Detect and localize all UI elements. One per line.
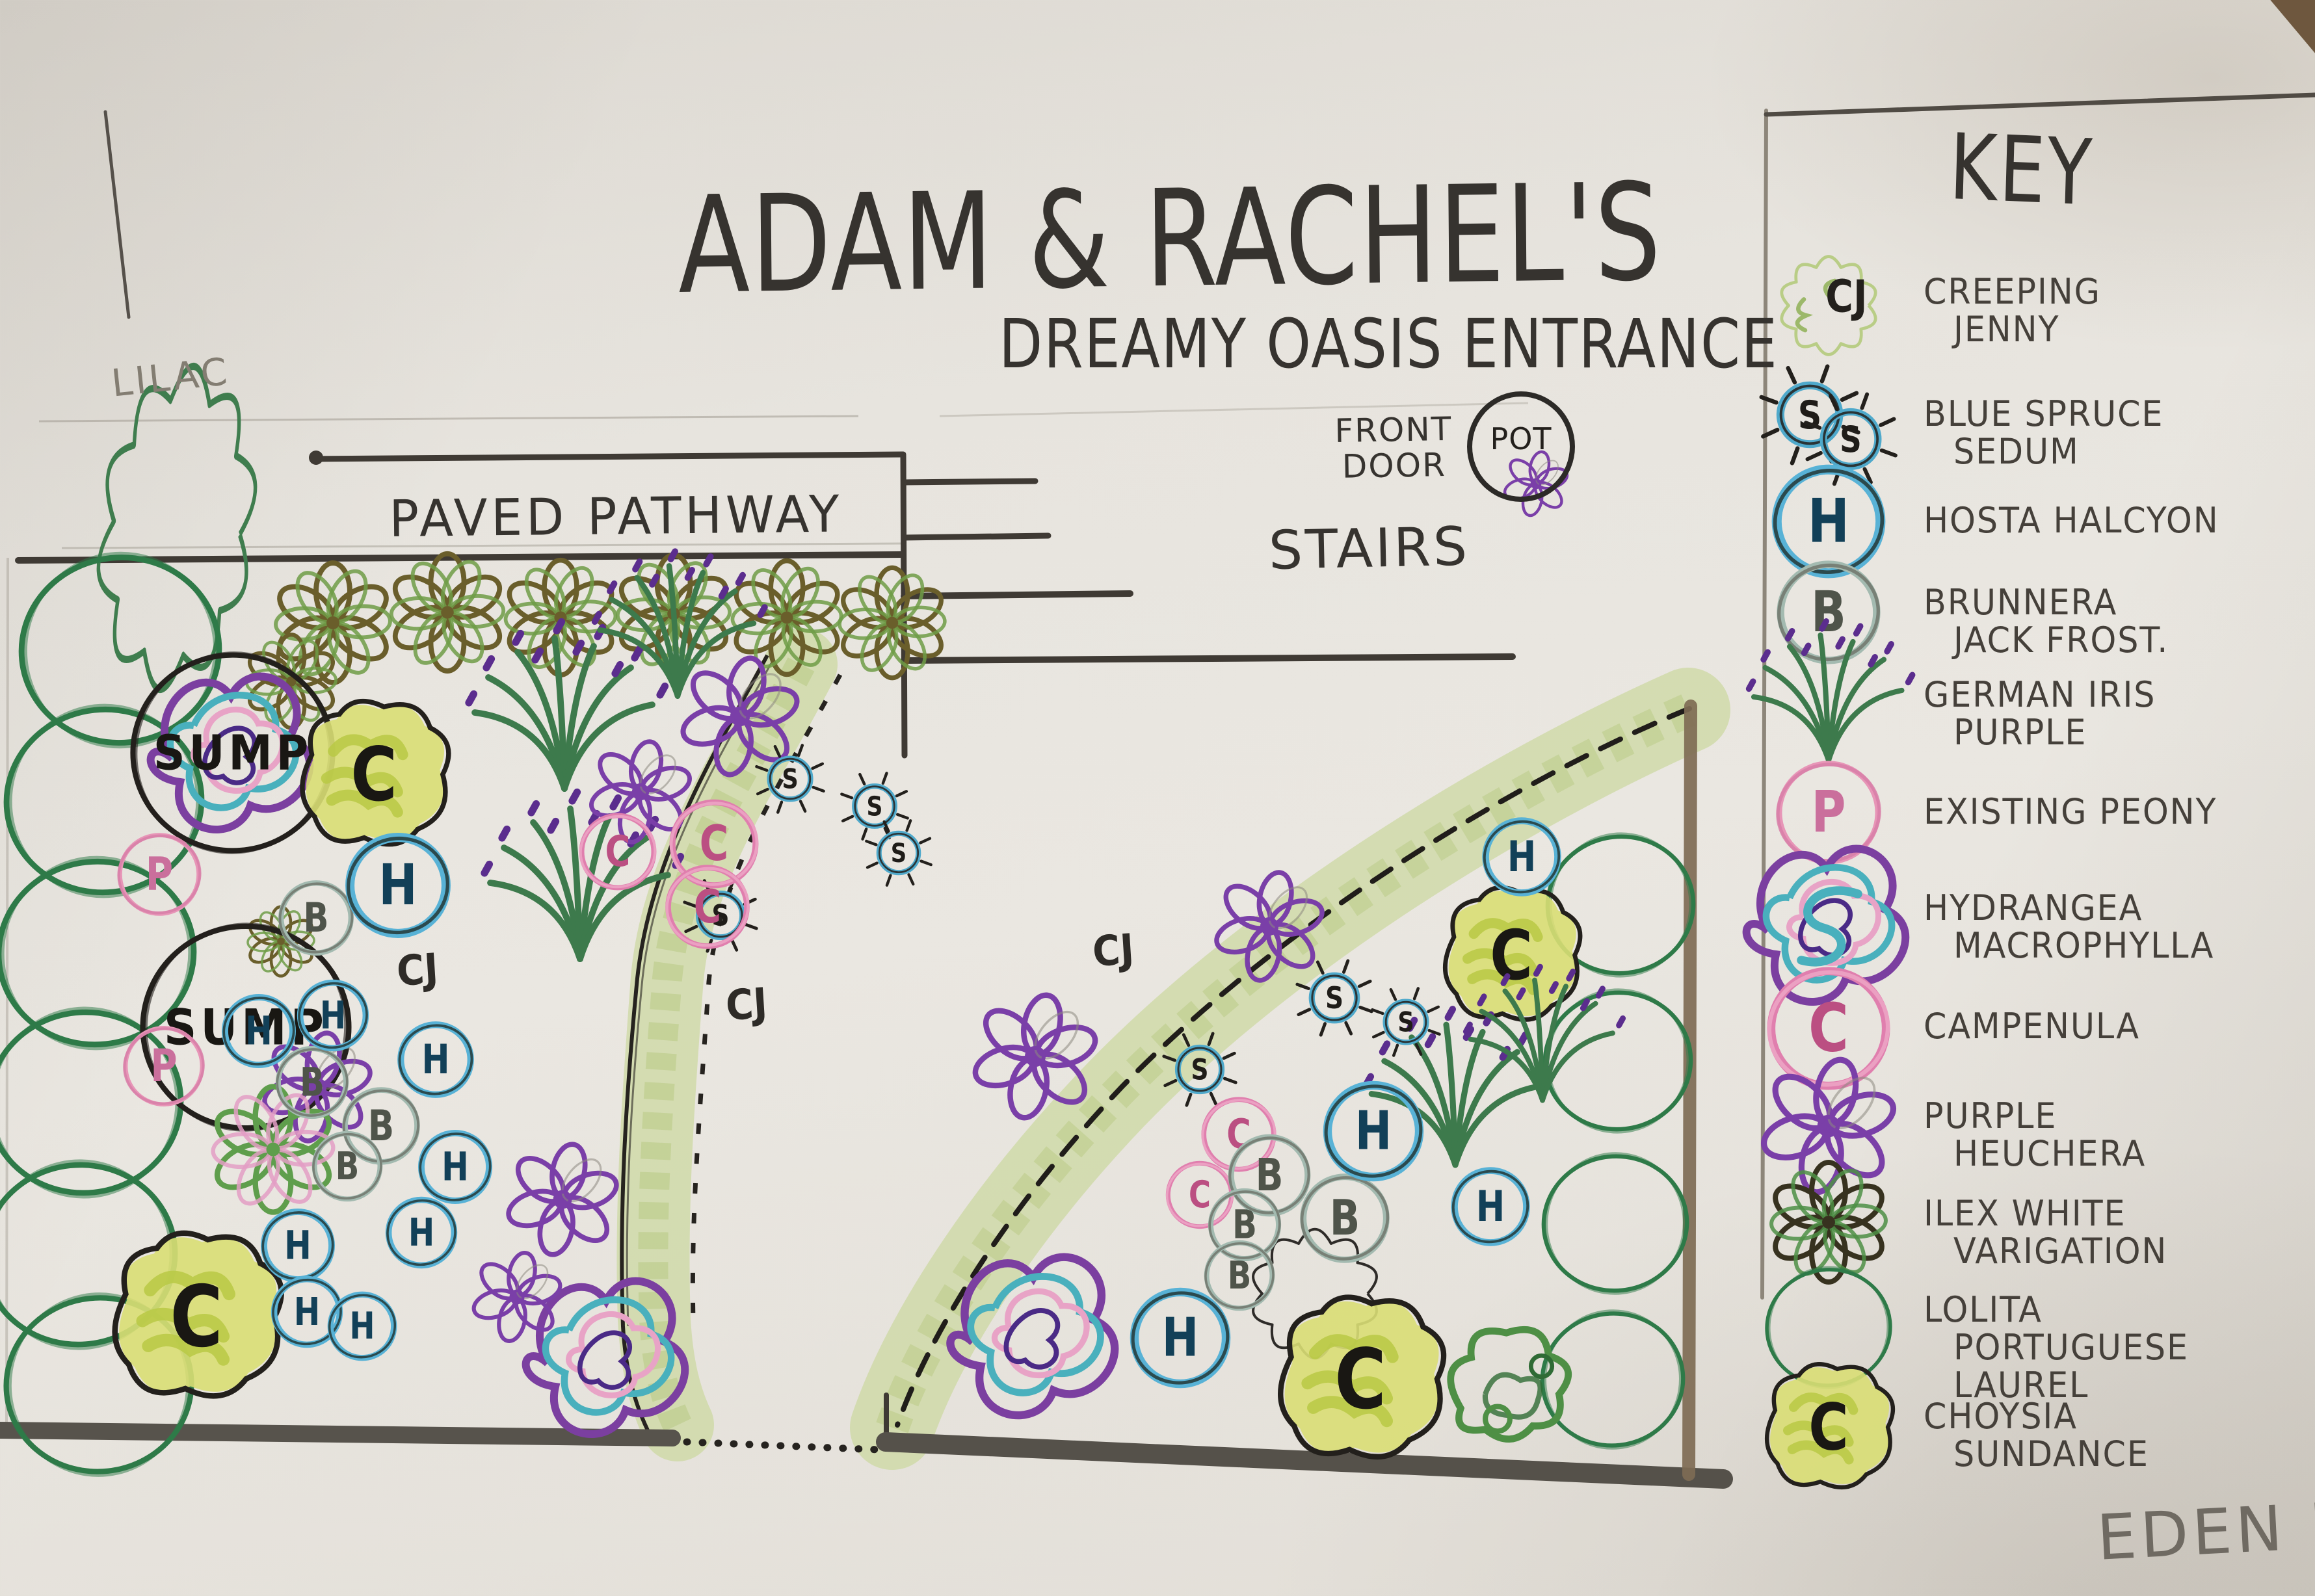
marker-hydr [950, 1257, 1115, 1415]
svg-text:H: H [442, 1144, 469, 1190]
marker-cj: CJ [1091, 925, 1135, 976]
marker-choysia: C [298, 698, 452, 848]
svg-text:CJ: CJ [1825, 270, 1867, 322]
svg-text:B: B [1330, 1190, 1360, 1246]
svg-text:H: H [1507, 832, 1536, 881]
marker-laurel [1537, 1144, 1694, 1303]
svg-text:H: H [294, 1289, 320, 1334]
key-entry-label: PORTUGUESE [1953, 1329, 2189, 1367]
garden-plan-photo: { "title": { "line1": "ADAM & RACHEL'S",… [0, 0, 2315, 1596]
pot-circle: POT [1467, 391, 1575, 502]
svg-text:H: H [1162, 1306, 1198, 1368]
marker-sedum: S [841, 773, 907, 839]
svg-text:CJ: CJ [395, 945, 440, 996]
key-entry-label: JACK FROST. [1953, 621, 2169, 659]
svg-text:H: H [320, 993, 346, 1038]
key-entry-6: HYDRANGEAMACROPHYLLA [1924, 889, 2231, 965]
svg-text:C: C [351, 731, 397, 818]
svg-text:SUMP: SUMP [153, 725, 312, 781]
key-entry-label: JENNY [1953, 311, 2103, 348]
key-entry-3: BRUNNERAJACK FROST. [1924, 584, 2182, 659]
front-door-line2: DOOR [1335, 447, 1453, 485]
svg-text:S: S [1798, 393, 1822, 438]
key-entry-1: BLUE SPRUCESEDUM [1924, 395, 2179, 471]
key-entry-7: CAMPENULA [1924, 1008, 2154, 1045]
svg-text:S: S [1840, 419, 1862, 461]
svg-text:S: S [782, 764, 798, 795]
svg-text:C: C [1334, 1331, 1386, 1428]
key-entry-4: GERMAN IRISPURPLE [1924, 676, 2171, 752]
page-title-line1: ADAM & RACHEL'S [678, 155, 1663, 324]
svg-text:C: C [700, 816, 729, 872]
marker-heuchera [470, 1250, 563, 1343]
marker-cloud [86, 359, 268, 698]
page-title-line2: DREAMY OASIS ENTRANCE [999, 304, 1779, 384]
svg-text:C: C [1808, 990, 1849, 1067]
key-entry-label: GERMAN IRIS [1924, 676, 2156, 714]
svg-text:CJ: CJ [724, 979, 769, 1030]
key-entry-label: CREEPING [1924, 273, 2101, 311]
svg-text:H: H [349, 1305, 375, 1348]
pathway-top-line [312, 454, 903, 459]
svg-text:B: B [1811, 579, 1846, 645]
key-entry-label: HYDRANGEA [1924, 889, 2212, 927]
marker-sedum: S [866, 820, 931, 885]
key-entry-label: LOLITA [1924, 1291, 2187, 1329]
svg-text:S: S [1325, 981, 1343, 1016]
marker-heuchera [504, 1141, 620, 1257]
paved-pathway-label: PAVED PATHWAY [389, 485, 843, 549]
key-entry-label: CAMPENULA [1924, 1008, 2140, 1045]
key-entry-label: SUNDANCE [1953, 1435, 2149, 1473]
svg-text:B: B [336, 1144, 360, 1188]
right-bed-right-border [1689, 706, 1691, 1474]
stair-tread [904, 481, 1035, 482]
front-door-line1: FRONT [1334, 412, 1453, 449]
svg-text:S: S [891, 838, 906, 868]
svg-text:B: B [1228, 1253, 1252, 1298]
marker-choysia: C [111, 1229, 285, 1400]
pathway-dots [687, 1442, 879, 1450]
marker-key-symbol-ilex [1768, 1162, 1888, 1282]
stair-tread [904, 657, 1513, 661]
marker-circ-hosta: H [1446, 1164, 1535, 1250]
svg-text:H: H [1355, 1099, 1392, 1162]
svg-text:CJ: CJ [1091, 925, 1135, 976]
marker-laurel [1535, 1301, 1690, 1458]
svg-text:C: C [1808, 1390, 1848, 1465]
svg-text:C: C [605, 827, 631, 876]
marker-circ-hosta: H [392, 1018, 479, 1102]
key-entry-label: SEDUM [1953, 433, 2165, 471]
stair-tread [904, 536, 1048, 538]
marker-ilex [388, 554, 507, 671]
marker-circ-hosta: H [380, 1194, 462, 1272]
svg-text:C: C [170, 1268, 222, 1367]
svg-text:C: C [1490, 916, 1533, 996]
svg-text:P: P [1811, 779, 1845, 846]
key-entry-label: PURPLE [1924, 1097, 2144, 1135]
key-entry-label: PURPLE [1953, 714, 2158, 752]
key-entry-9: ILEX WHITEVARIGATION [1924, 1195, 2181, 1270]
marker-key-symbol-choysia: C [1764, 1361, 1896, 1491]
key-panel-left-border [1762, 111, 1766, 1298]
front-door-label: FRONT DOOR [1334, 412, 1453, 485]
key-entry-label: HOSTA HALCYON [1924, 502, 2219, 540]
key-entry-11: CHOYSIASUNDANCE [1924, 1398, 2162, 1473]
marker-cj: CJ [724, 979, 769, 1030]
key-entry-label: HEUCHERA [1953, 1135, 2146, 1173]
svg-text:H: H [378, 852, 417, 918]
svg-text:H: H [1476, 1182, 1505, 1231]
key-entry-label: BRUNNERA [1924, 584, 2167, 621]
svg-text:H: H [284, 1223, 311, 1269]
marker-choysia: C [1277, 1293, 1448, 1461]
key-entry-label: EXISTING PEONY [1924, 793, 2217, 831]
svg-text:B: B [300, 1060, 324, 1106]
key-entry-label: MACROPHYLLA [1953, 927, 2214, 965]
stairs-label: STAIRS [1268, 516, 1470, 582]
marker-heuchera [970, 991, 1100, 1121]
key-entry-label: ILEX WHITE [1924, 1195, 2166, 1233]
key-entry-5: EXISTING PEONY [1924, 793, 2236, 831]
key-entry-label: BLUE SPRUCE [1924, 395, 2163, 433]
svg-text:H: H [1808, 486, 1849, 556]
key-entry-label: CHOYSIA [1924, 1398, 2147, 1435]
right-bed-edge [892, 709, 1689, 1428]
svg-text:B: B [303, 894, 328, 941]
lilac-stem [105, 112, 129, 317]
svg-text:C: C [694, 880, 721, 934]
key-entry-0: CREEPINGJENNY [1924, 273, 2112, 348]
svg-text:C: C [1189, 1174, 1211, 1217]
pot-label: POT [1472, 421, 1570, 456]
svg-text:S: S [1191, 1053, 1208, 1087]
marker-circ-hosta: H [413, 1127, 497, 1208]
svg-text:H: H [408, 1210, 434, 1255]
key-entry-2: HOSTA HALCYON [1924, 502, 2238, 540]
svg-text:S: S [1397, 1007, 1414, 1038]
svg-text:P: P [146, 848, 173, 901]
svg-text:P: P [150, 1040, 177, 1092]
svg-text:H: H [421, 1036, 449, 1083]
key-title: KEY [1948, 114, 2095, 227]
marker-cj: CJ [395, 945, 440, 996]
svg-text:S: S [867, 791, 883, 822]
key-entry-10: LOLITAPORTUGUESELAUREL [1924, 1291, 2204, 1404]
marker-key-symbol-heuchera [1758, 1056, 1898, 1196]
key-entry-label: VARIGATION [1953, 1233, 2167, 1270]
marker-key-symbol-hydrkey [1747, 849, 1906, 1002]
marker-key-symbol-cjkey: CJ [1782, 257, 1875, 355]
key-entry-8: PURPLEHEUCHERA [1924, 1097, 2158, 1173]
svg-text:H: H [245, 1008, 272, 1054]
key-panel-top-border [1766, 95, 2315, 114]
